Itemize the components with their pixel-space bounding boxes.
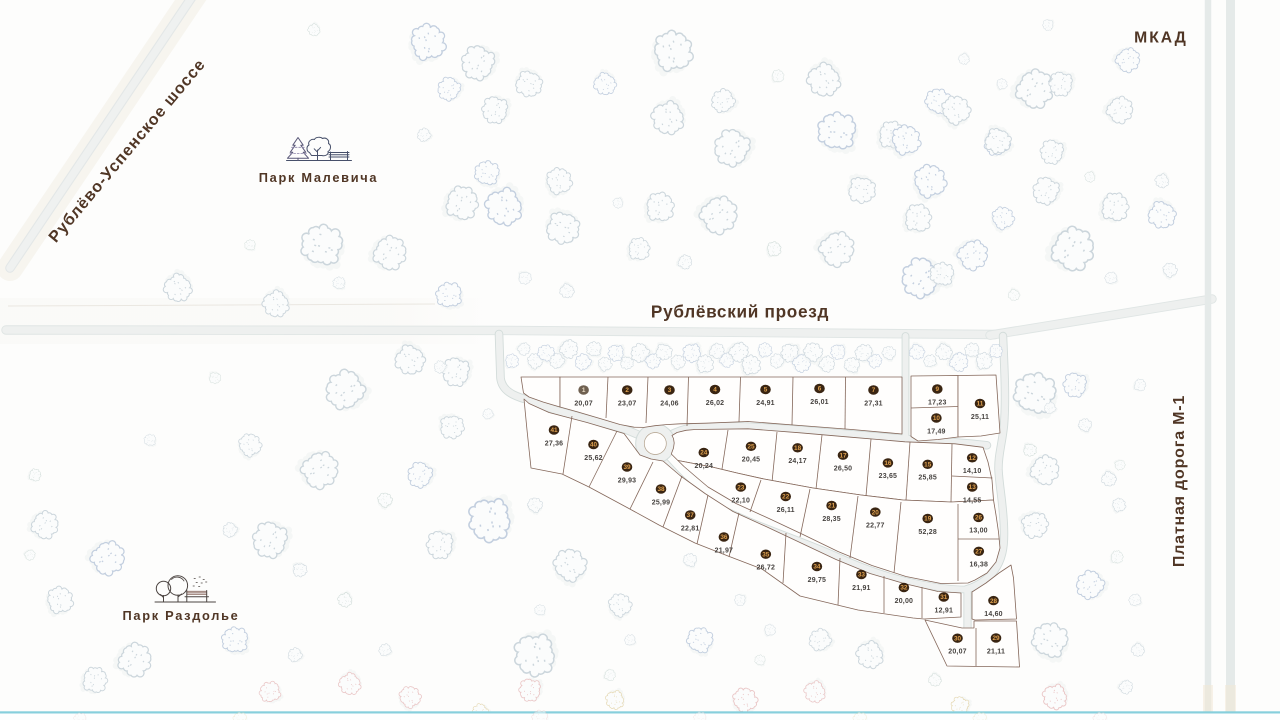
svg-text:2: 2 [625, 387, 629, 394]
svg-text:25,11: 25,11 [971, 414, 989, 421]
svg-text:24,91: 24,91 [756, 400, 775, 407]
svg-text:23: 23 [737, 484, 745, 491]
svg-text:16: 16 [884, 460, 892, 467]
svg-text:26,02: 26,02 [706, 400, 725, 407]
svg-text:27: 27 [975, 549, 983, 556]
svg-text:35: 35 [762, 551, 770, 558]
svg-text:17: 17 [839, 452, 847, 459]
svg-text:52,28: 52,28 [918, 529, 937, 536]
svg-text:32: 32 [900, 585, 908, 592]
svg-text:22,77: 22,77 [866, 522, 885, 529]
svg-text:Платная дорога М-1: Платная дорога М-1 [1171, 395, 1188, 567]
svg-text:12,91: 12,91 [935, 607, 954, 614]
svg-text:30: 30 [954, 635, 962, 642]
svg-text:11: 11 [977, 401, 984, 408]
svg-text:26,72: 26,72 [757, 565, 776, 572]
svg-text:23,65: 23,65 [879, 473, 898, 480]
svg-text:29,93: 29,93 [618, 477, 637, 484]
svg-text:21: 21 [828, 503, 836, 510]
svg-text:36: 36 [720, 534, 728, 541]
svg-text:14,55: 14,55 [963, 497, 982, 504]
svg-text:25,99: 25,99 [652, 499, 671, 506]
svg-text:26,01: 26,01 [810, 399, 829, 406]
svg-text:40: 40 [590, 442, 598, 449]
svg-text:39: 39 [623, 464, 631, 471]
svg-text:16,38: 16,38 [970, 562, 989, 569]
svg-text:41: 41 [550, 427, 558, 434]
svg-text:21,11: 21,11 [987, 648, 1005, 655]
svg-text:37: 37 [687, 512, 695, 519]
svg-text:20,00: 20,00 [895, 598, 914, 605]
svg-text:12: 12 [969, 455, 977, 462]
svg-text:Парк Малевича: Парк Малевича [259, 170, 378, 185]
svg-text:38: 38 [657, 486, 665, 493]
svg-text:28,35: 28,35 [822, 516, 841, 523]
svg-text:21,97: 21,97 [715, 547, 734, 554]
svg-text:15: 15 [924, 462, 932, 469]
svg-text:22: 22 [782, 494, 790, 501]
svg-text:17,23: 17,23 [928, 399, 947, 406]
svg-text:14,60: 14,60 [984, 611, 1003, 618]
svg-text:20,45: 20,45 [742, 457, 761, 464]
svg-text:29: 29 [992, 635, 1000, 642]
svg-text:28: 28 [990, 598, 998, 605]
svg-text:29,75: 29,75 [808, 577, 827, 584]
svg-text:27,36: 27,36 [545, 440, 564, 447]
svg-text:25,62: 25,62 [584, 455, 603, 462]
svg-text:4: 4 [713, 387, 717, 394]
svg-text:26,50: 26,50 [834, 466, 853, 473]
svg-text:1: 1 [582, 387, 586, 394]
svg-text:20,07: 20,07 [948, 649, 967, 656]
svg-text:13,00: 13,00 [969, 528, 988, 535]
svg-text:18: 18 [794, 445, 802, 452]
svg-text:25,85: 25,85 [918, 475, 937, 482]
svg-text:20,24: 20,24 [695, 463, 714, 470]
svg-text:7: 7 [872, 387, 876, 394]
svg-text:34: 34 [813, 564, 821, 571]
svg-text:17,49: 17,49 [927, 428, 946, 435]
svg-text:22,81: 22,81 [681, 525, 700, 532]
svg-text:24: 24 [700, 450, 708, 457]
svg-text:27,31: 27,31 [864, 400, 883, 407]
svg-text:3: 3 [668, 387, 672, 394]
svg-text:10: 10 [933, 415, 941, 422]
svg-text:24,17: 24,17 [788, 458, 807, 465]
svg-text:24,06: 24,06 [660, 400, 679, 407]
svg-text:26,11: 26,11 [777, 507, 795, 514]
svg-text:19: 19 [924, 516, 932, 523]
svg-text:МКАД: МКАД [1134, 30, 1188, 47]
svg-text:25: 25 [747, 444, 755, 451]
svg-text:26: 26 [975, 515, 983, 522]
svg-text:22,10: 22,10 [732, 497, 751, 504]
svg-text:Рублёвский проезд: Рублёвский проезд [651, 302, 829, 322]
svg-text:21,91: 21,91 [852, 585, 871, 592]
svg-text:14,10: 14,10 [963, 468, 982, 475]
svg-text:20,07: 20,07 [574, 400, 593, 407]
svg-text:23,07: 23,07 [618, 400, 637, 407]
svg-text:33: 33 [858, 572, 866, 579]
svg-text:9: 9 [936, 386, 940, 393]
svg-text:6: 6 [818, 386, 822, 393]
svg-text:5: 5 [764, 387, 768, 394]
svg-text:13: 13 [969, 484, 977, 491]
svg-text:Парк Раздолье: Парк Раздолье [123, 608, 240, 623]
svg-text:31: 31 [940, 594, 948, 601]
svg-text:20: 20 [872, 509, 880, 516]
